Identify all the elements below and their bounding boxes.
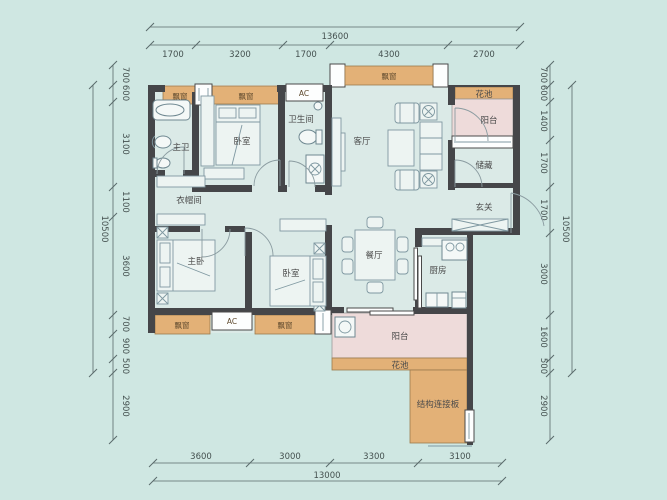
dim-bottom-4: 3100	[449, 452, 471, 462]
dining-chair	[397, 259, 408, 274]
ac-label-top: AC	[299, 89, 309, 98]
label-dining: 餐厅	[365, 251, 383, 261]
label-bay-living: 飘窗	[382, 71, 397, 81]
dim-top-1: 1700	[162, 50, 184, 60]
tv-cabinet	[332, 118, 341, 186]
label-bedroom-top: 卧室	[233, 136, 251, 147]
rack-cloak-bottom	[157, 214, 205, 225]
dim-right-4: 1700	[538, 152, 548, 174]
dim-left-2: 600	[120, 85, 130, 101]
dim-right-6: 3000	[538, 263, 548, 285]
label-bay-2: 飘窗	[239, 91, 254, 101]
floorplan-drawing: 13600 1700 3200 1700 4300 2700 3600 3000…	[0, 0, 667, 500]
sliding-door-balcony	[370, 311, 414, 315]
label-balcony-bottom: 阳台	[391, 331, 408, 342]
dim-bottom-1: 3600	[190, 452, 212, 462]
dim-top-4: 4300	[378, 50, 400, 60]
dining-chair	[342, 237, 353, 252]
dimensions-right: 700 600 1400 1700 1700 3000 1600 500 290…	[538, 61, 576, 444]
label-bay-1: 飘窗	[173, 91, 188, 101]
dining-chair	[367, 217, 383, 228]
label-balcony-top: 阳台	[480, 115, 497, 126]
dim-left-5: 3600	[120, 255, 130, 277]
dim-right-8: 500	[538, 358, 548, 374]
dining-chair	[397, 237, 408, 252]
label-bathroom: 卫生间	[288, 114, 314, 125]
armchair-top	[395, 103, 419, 123]
label-master-bedroom: 主卧	[187, 256, 205, 267]
armchair-bottom	[395, 170, 419, 190]
dimensions-left: 700 600 3100 1100 3600 700 900 500 2900 …	[89, 61, 130, 444]
label-storage: 储藏	[475, 160, 493, 171]
dim-top-total: 13600	[321, 32, 348, 42]
bay-frame-left	[330, 64, 345, 87]
label-slab: 结构连接板	[417, 399, 460, 410]
sofa	[420, 122, 442, 170]
dim-right-3: 1400	[538, 110, 548, 132]
dim-right-2: 600	[538, 85, 548, 101]
dim-left-total: 10500	[99, 215, 109, 242]
rack-bedroom-bottom	[280, 219, 326, 231]
label-entry: 玄关	[475, 202, 493, 213]
floorplan-page: 13600 1700 3200 1700 4300 2700 3600 3000…	[0, 0, 667, 500]
dim-left-3: 3100	[120, 133, 130, 155]
label-master-bath: 主卫	[172, 142, 190, 153]
label-bay-3: 飘窗	[175, 320, 190, 330]
dim-left-7: 900	[120, 338, 130, 354]
label-bay-4: 飘窗	[278, 320, 293, 330]
washing-machine	[335, 317, 355, 337]
dim-right-7: 1600	[538, 326, 548, 348]
dim-bottom-3: 3300	[363, 452, 385, 462]
label-living: 客厅	[353, 136, 371, 147]
ac-label-bottom: AC	[227, 317, 237, 326]
sliding-door-kitchen	[418, 256, 422, 308]
dim-left-1: 700	[120, 67, 130, 83]
label-kitchen: 厨房	[429, 265, 446, 276]
bay-frame-right	[433, 64, 448, 87]
dim-left-9: 2900	[120, 395, 130, 417]
toilet-bathroom	[299, 130, 317, 144]
sink-masterbath	[155, 136, 171, 148]
coffee-table	[388, 130, 414, 166]
dim-right-5: 1700	[538, 199, 548, 221]
dim-right-9: 2900	[538, 395, 548, 417]
dimensions-bottom: 3600 3000 3300 3100 13000	[149, 452, 506, 485]
label-cloakroom: 衣帽间	[176, 195, 202, 206]
dim-bottom-2: 3000	[279, 452, 301, 462]
dim-top-2: 3200	[229, 50, 251, 60]
label-bedroom-bottom: 卧室	[282, 268, 300, 279]
window-slab	[465, 410, 474, 442]
dim-top-3: 1700	[295, 50, 317, 60]
dining-chair	[342, 259, 353, 274]
tv	[341, 133, 345, 171]
fridge	[452, 292, 466, 308]
dim-left-8: 500	[120, 358, 130, 374]
dim-right-1: 700	[538, 67, 548, 83]
dim-top-5: 2700	[473, 50, 495, 60]
dimensions-top: 13600 1700 3200 1700 4300 2700	[146, 23, 524, 60]
rack-bedroom-top	[204, 168, 244, 179]
sink-bathroom	[314, 102, 322, 110]
label-flower-bottom: 花池	[391, 360, 409, 371]
dim-left-4: 1100	[120, 191, 130, 213]
dim-right-total: 10500	[560, 215, 570, 242]
sliding-door-kitchen	[414, 248, 418, 300]
rack-cloak-top	[157, 176, 205, 187]
dim-bottom-total: 13000	[313, 471, 340, 481]
dim-left-6: 700	[120, 316, 130, 332]
wardrobe-bedroom-top	[201, 96, 214, 166]
dining-chair	[367, 282, 383, 293]
label-flower-top: 花池	[475, 89, 493, 100]
